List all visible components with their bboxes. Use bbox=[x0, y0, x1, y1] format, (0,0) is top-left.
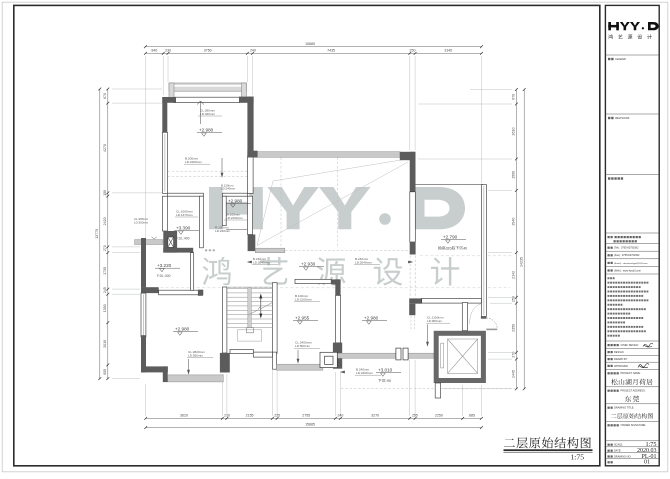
svg-text:SCALE:: SCALE: bbox=[614, 444, 623, 447]
svg-text:LEGEND: LEGEND bbox=[615, 57, 626, 61]
svg-text:7435: 7435 bbox=[327, 49, 335, 53]
svg-text:01: 01 bbox=[644, 460, 650, 466]
svg-text:250: 250 bbox=[410, 49, 416, 53]
svg-text:240: 240 bbox=[337, 413, 343, 417]
svg-text:3620: 3620 bbox=[180, 413, 188, 417]
svg-text:DRAWN BY: DRAWN BY bbox=[614, 358, 628, 361]
svg-text:1:75: 1:75 bbox=[645, 441, 656, 448]
svg-text:1:75: 1:75 bbox=[570, 453, 584, 462]
svg-text:2755: 2755 bbox=[302, 413, 310, 417]
svg-text:F.DL:400: F.DL:400 bbox=[176, 237, 190, 241]
svg-text:1735: 1735 bbox=[103, 267, 107, 275]
svg-text:2155: 2155 bbox=[246, 413, 254, 417]
svg-text:2610: 2610 bbox=[512, 128, 516, 136]
svg-text:230: 230 bbox=[165, 49, 171, 53]
svg-text:CHIEF DESIGN: CHIEF DESIGN bbox=[621, 344, 639, 347]
svg-text:1350: 1350 bbox=[103, 304, 107, 312]
svg-text:+2.790: +2.790 bbox=[443, 235, 458, 240]
svg-text:14235: 14235 bbox=[519, 257, 523, 267]
svg-text:270: 270 bbox=[512, 352, 516, 358]
svg-text:+3.010: +3.010 bbox=[378, 368, 393, 373]
svg-text:+2.980: +2.980 bbox=[175, 327, 190, 332]
svg-text:320: 320 bbox=[446, 246, 452, 250]
svg-text:245: 245 bbox=[103, 287, 107, 293]
svg-text:DESIGN: DESIGN bbox=[614, 351, 624, 354]
svg-text:+2.980: +2.980 bbox=[199, 128, 214, 133]
svg-text:2350: 2350 bbox=[512, 324, 516, 332]
svg-text:F.DL:300: F.DL:300 bbox=[157, 274, 171, 278]
svg-text:655: 655 bbox=[103, 369, 107, 375]
svg-text:240: 240 bbox=[250, 49, 256, 53]
svg-text:270: 270 bbox=[103, 245, 107, 251]
svg-text:PROJECT ADDRESS:: PROJECT ADDRESS: bbox=[621, 390, 646, 393]
svg-text:4270: 4270 bbox=[103, 144, 107, 152]
svg-text:+2.930: +2.930 bbox=[301, 262, 316, 267]
svg-text:3750: 3750 bbox=[204, 49, 212, 53]
svg-text:LD:2100mm: LD:2100mm bbox=[226, 216, 243, 220]
svg-text:REVISIONS: REVISIONS bbox=[615, 116, 629, 120]
svg-text:2250: 2250 bbox=[435, 413, 443, 417]
svg-text:3140: 3140 bbox=[444, 49, 452, 53]
svg-text:APPROVED: APPROVED bbox=[614, 365, 628, 368]
svg-text:670: 670 bbox=[512, 94, 516, 100]
svg-text:1445: 1445 bbox=[512, 370, 516, 378]
svg-text:PROJECT NAME:: PROJECT NAME: bbox=[621, 372, 642, 375]
svg-text:210: 210 bbox=[224, 413, 230, 417]
svg-text:3270: 3270 bbox=[371, 413, 379, 417]
svg-text:2142: 2142 bbox=[512, 271, 516, 279]
svg-text:LD:2400mm: LD:2400mm bbox=[356, 371, 373, 375]
svg-text:225: 225 bbox=[274, 413, 280, 417]
svg-text:150: 150 bbox=[103, 190, 107, 196]
svg-text:+2.980: +2.980 bbox=[228, 199, 243, 204]
svg-text:(Web) : www.hyyd3.com: (Web) : www.hyyd3.com bbox=[614, 269, 641, 272]
svg-text:+3.220: +3.220 bbox=[157, 263, 172, 268]
svg-text:LD:2040mm: LD:2040mm bbox=[355, 261, 372, 265]
svg-text:670: 670 bbox=[103, 93, 107, 99]
svg-text:LD:1370mm: LD:1370mm bbox=[176, 213, 193, 217]
svg-text:DRAWING NO:: DRAWING NO: bbox=[614, 455, 631, 458]
svg-text:(Tel) : 0755-82791562: (Tel) : 0755-82791562 bbox=[614, 247, 639, 250]
svg-text::90: :90 bbox=[386, 379, 391, 383]
svg-text:LD:2040mm: LD:2040mm bbox=[253, 261, 270, 265]
svg-text:885: 885 bbox=[469, 413, 475, 417]
svg-text:2010: 2010 bbox=[103, 340, 107, 348]
svg-text:LD:550mm: LD:550mm bbox=[188, 354, 204, 358]
svg-text:1560: 1560 bbox=[512, 171, 516, 179]
svg-text:LD:900mm: LD:900mm bbox=[427, 319, 443, 323]
svg-text:LD:500mm: LD:500mm bbox=[295, 344, 311, 348]
svg-text:DATE:: DATE: bbox=[614, 450, 621, 453]
svg-text:(Fax) : 0755-82791562: (Fax) : 0755-82791562 bbox=[614, 254, 640, 257]
svg-text:OWNER SIGNATURE:: OWNER SIGNATURE: bbox=[621, 424, 647, 427]
svg-text:15885: 15885 bbox=[305, 423, 315, 427]
svg-text:250: 250 bbox=[512, 296, 516, 302]
svg-text:LD:300mm: LD:300mm bbox=[134, 220, 149, 224]
svg-text:LD:240mm: LD:240mm bbox=[215, 229, 231, 233]
svg-text:+3.390: +3.390 bbox=[176, 226, 191, 231]
svg-text:LD:320mm: LD:320mm bbox=[200, 112, 216, 116]
svg-text:15885: 15885 bbox=[305, 42, 315, 46]
svg-text:LD:2100mm: LD:2100mm bbox=[295, 298, 312, 302]
svg-text:13775: 13775 bbox=[95, 229, 99, 239]
svg-text:+2.980: +2.980 bbox=[364, 316, 379, 321]
svg-text:840: 840 bbox=[151, 49, 157, 53]
svg-text:DRAWING TITLE:: DRAWING TITLE: bbox=[614, 407, 634, 410]
svg-text:2940: 2940 bbox=[512, 218, 516, 226]
svg-text:+2.955: +2.955 bbox=[295, 316, 310, 321]
svg-text:LD:2400mm: LD:2400mm bbox=[185, 160, 202, 164]
svg-text:LD:240mm: LD:240mm bbox=[221, 187, 236, 191]
svg-text:2420: 2420 bbox=[103, 217, 107, 225]
svg-text:40: 40 bbox=[463, 246, 467, 250]
svg-text:255: 255 bbox=[412, 413, 418, 417]
svg-text:(Email) : shenzhenhyyd@163.com: (Email) : shenzhenhyyd@163.com bbox=[614, 263, 648, 265]
